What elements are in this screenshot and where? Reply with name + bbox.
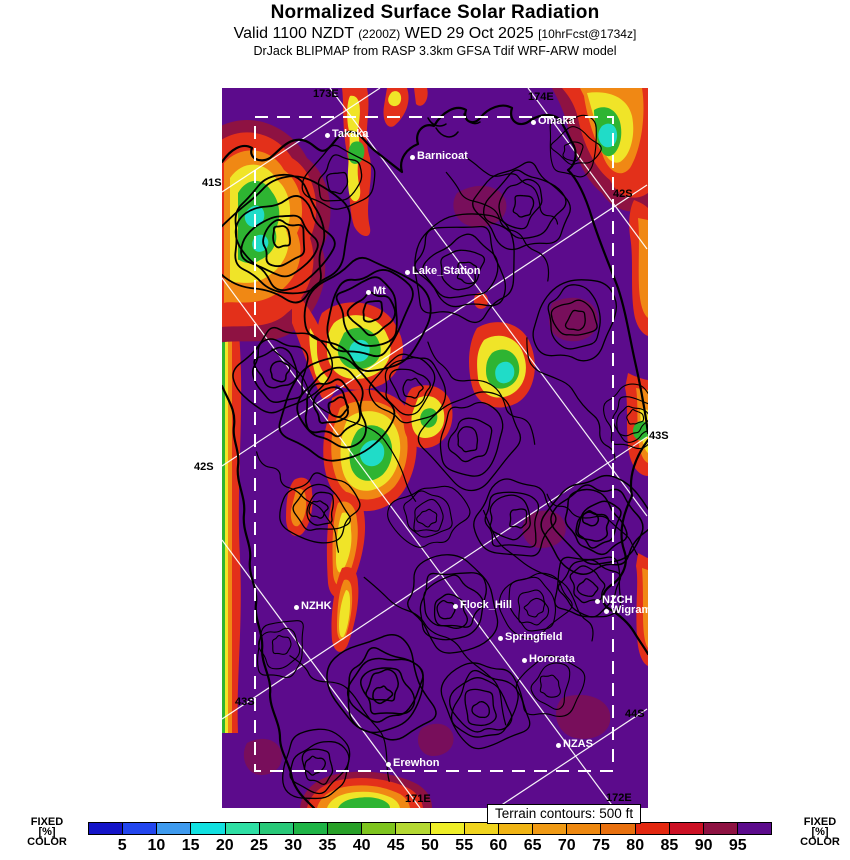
colorbar-segment bbox=[157, 823, 191, 834]
colorbar-tick-label: 45 bbox=[387, 837, 405, 855]
colorbar-segment bbox=[499, 823, 533, 834]
graticule-label: 174E bbox=[528, 91, 554, 103]
colorbar-segment bbox=[670, 823, 704, 834]
map-inner-labels: 173E174E171E172E42S43S44S bbox=[222, 88, 648, 808]
colorbar-segment bbox=[704, 823, 738, 834]
colorbar-tick-label: 55 bbox=[455, 837, 473, 855]
fixed-color-label-right: FIXED [%] COLOR bbox=[785, 817, 850, 847]
valid-date: WED 29 Oct 2025 bbox=[405, 25, 534, 42]
colorbar-tick-label: 95 bbox=[729, 837, 747, 855]
colorbar-segment bbox=[431, 823, 465, 834]
colorbar-tick-label: 20 bbox=[216, 837, 234, 855]
colorbar-tick-label: 90 bbox=[695, 837, 713, 855]
colorbar-tick-label: 25 bbox=[250, 837, 268, 855]
colorbar-segment bbox=[465, 823, 499, 834]
valid-zulu: (2200Z) bbox=[358, 27, 400, 41]
colorbar-segment bbox=[89, 823, 123, 834]
terrain-note: Terrain contours: 500 ft bbox=[487, 804, 641, 824]
colorbar-segment bbox=[226, 823, 260, 834]
fixed-label-line3: COLOR bbox=[12, 837, 82, 847]
colorbar-tick-label: 65 bbox=[524, 837, 542, 855]
colorbar-tick-label: 75 bbox=[592, 837, 610, 855]
header: Normalized Surface Solar Radiation Valid… bbox=[10, 2, 850, 58]
colorbar-segment bbox=[191, 823, 225, 834]
valid-time-line: Valid 1100 NZDT (2200Z) WED 29 Oct 2025 … bbox=[10, 25, 850, 43]
valid-prefix: Valid 1100 NZDT bbox=[234, 25, 354, 42]
colorbar-tick-label: 60 bbox=[489, 837, 507, 855]
colorbar-segment bbox=[362, 823, 396, 834]
colorbar-tick-label: 15 bbox=[182, 837, 200, 855]
colorbar-area: FIXED [%] COLOR 510152025303540455055606… bbox=[0, 815, 850, 860]
colorbar-ticks: 5101520253035404550556065707580859095 bbox=[88, 835, 772, 859]
colorbar-tick-label: 70 bbox=[558, 837, 576, 855]
fixed-color-label-left: FIXED [%] COLOR bbox=[12, 817, 82, 847]
colorbar-tick-label: 10 bbox=[147, 837, 165, 855]
model-line: DrJack BLIPMAP from RASP 3.3km GFSA Tdif… bbox=[10, 44, 850, 58]
colorbar-segment bbox=[123, 823, 157, 834]
fixed-label-line3: COLOR bbox=[785, 837, 850, 847]
graticule-label: 41S bbox=[202, 177, 222, 189]
colorbar-segment bbox=[328, 823, 362, 834]
colorbar-tick-label: 80 bbox=[626, 837, 644, 855]
colorbar-segment bbox=[294, 823, 328, 834]
graticule-label: 172E bbox=[606, 792, 632, 804]
forecast-info: [10hrFcst@1734z] bbox=[538, 27, 636, 41]
colorbar-segment bbox=[738, 823, 771, 834]
colorbar-segment bbox=[533, 823, 567, 834]
colorbar-segment bbox=[601, 823, 635, 834]
colorbar-tick-label: 50 bbox=[421, 837, 439, 855]
colorbar-segment bbox=[636, 823, 670, 834]
graticule-label: 173E bbox=[313, 88, 339, 100]
graticule-label: 42S bbox=[194, 461, 214, 473]
page-title: Normalized Surface Solar Radiation bbox=[10, 2, 850, 24]
colorbar-tick-label: 35 bbox=[318, 837, 336, 855]
colorbar-segment bbox=[567, 823, 601, 834]
colorbar-tick-label: 40 bbox=[353, 837, 371, 855]
colorbar bbox=[88, 822, 772, 835]
graticule-label: 42S bbox=[613, 188, 633, 200]
colorbar-tick-label: 85 bbox=[660, 837, 678, 855]
graticule-label: 171E bbox=[405, 793, 431, 805]
colorbar-tick-label: 30 bbox=[284, 837, 302, 855]
colorbar-segment bbox=[260, 823, 294, 834]
graticule-label: 43S bbox=[649, 430, 669, 442]
graticule-label: 44S bbox=[625, 708, 645, 720]
colorbar-segment bbox=[396, 823, 430, 834]
map-canvas: TakakaBarnicoatOmakaLake_StationMtNZHKFl… bbox=[222, 88, 648, 808]
colorbar-tick-label: 5 bbox=[118, 837, 127, 855]
graticule-label: 43S bbox=[235, 696, 255, 708]
